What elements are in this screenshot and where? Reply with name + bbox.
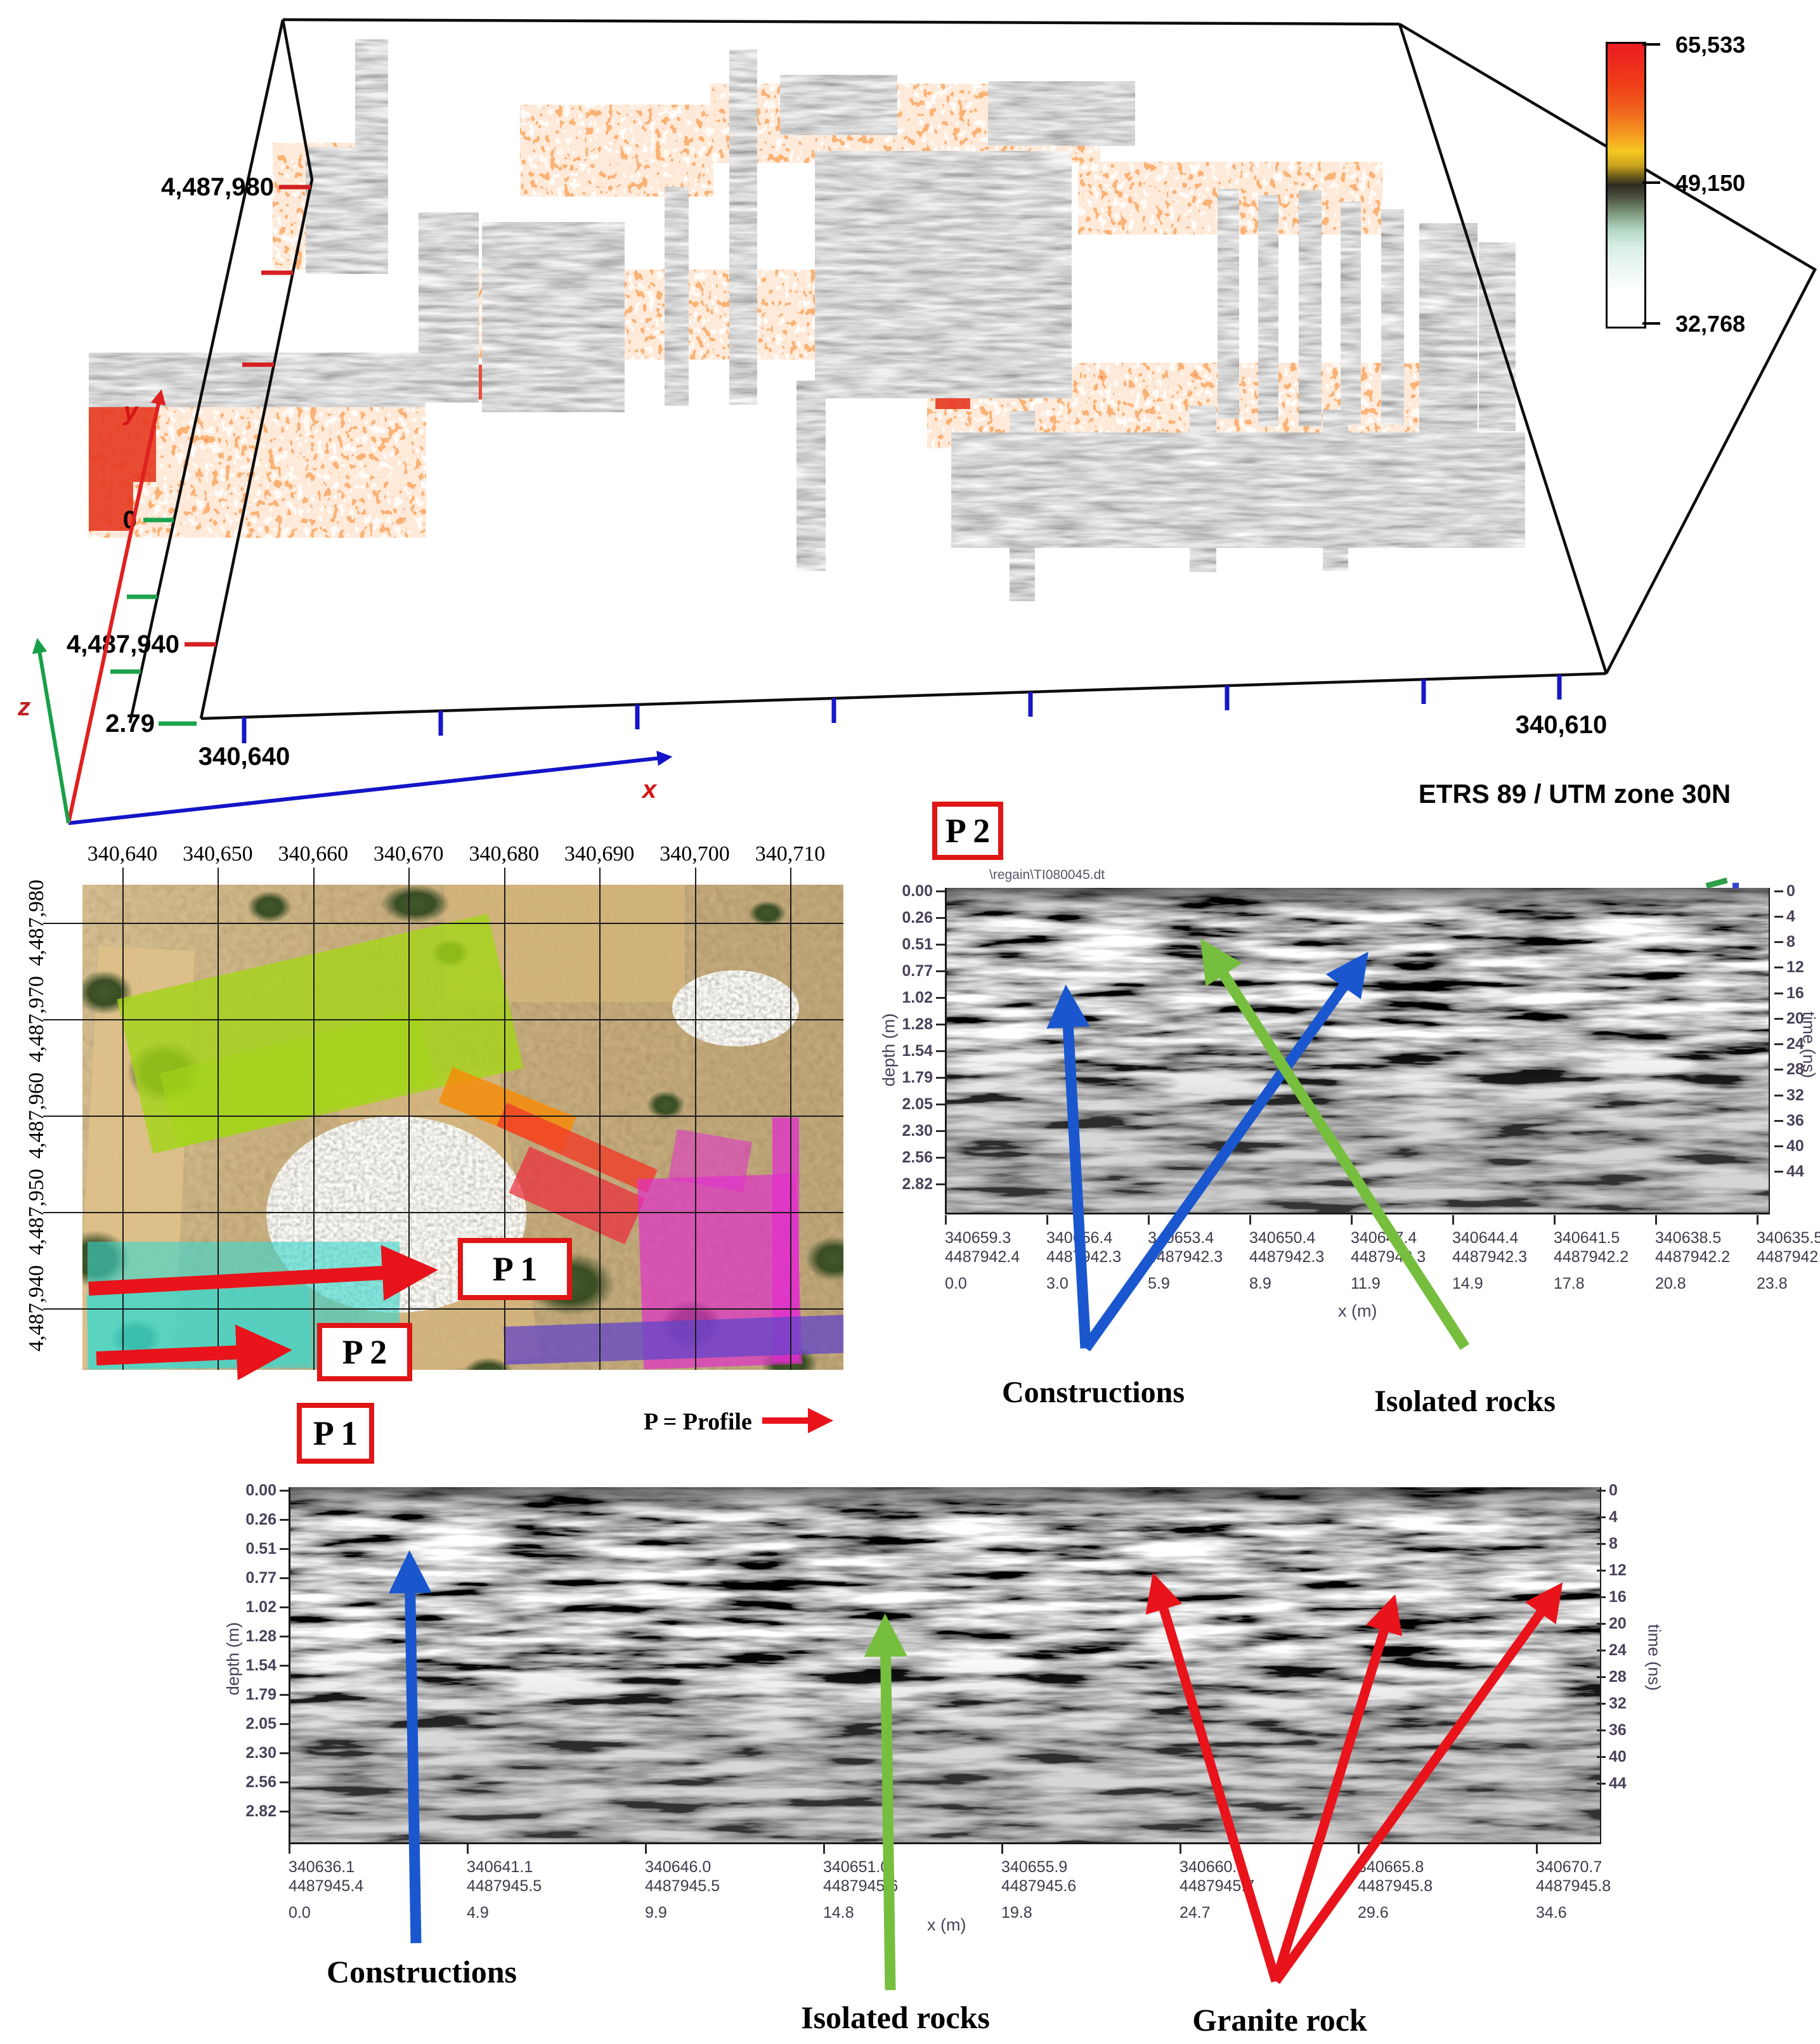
p2-depth-axis-label: depth (m): [880, 999, 899, 1101]
time-tick: 8: [1597, 1535, 1667, 1552]
profile-legend: P = Profile: [644, 1408, 752, 1436]
tick-dash: [1597, 1729, 1606, 1731]
tick-easting: 340659.3: [945, 1229, 1020, 1248]
3d-axis-y-label: y: [122, 398, 139, 426]
tick-mark: [1554, 1215, 1556, 1225]
tick-mark: [1452, 1215, 1454, 1225]
p1-radargram-shade: [290, 1487, 1600, 1842]
colorbar: [1606, 42, 1646, 329]
depth-tick: 0.51: [219, 1540, 289, 1557]
tick-dash: [1597, 1490, 1606, 1492]
depth-tick: 0.00: [875, 883, 945, 899]
tick-dash: [1597, 1516, 1606, 1518]
tick-dash: [1774, 993, 1783, 994]
map-gridline-h: [43, 1308, 843, 1310]
tick-easting: 340650.4: [1249, 1229, 1324, 1248]
vegetation: [247, 891, 292, 923]
tick-easting: 340635.5: [1757, 1229, 1820, 1248]
tick-northing: 4487942.3: [1452, 1248, 1527, 1267]
map-easting-labels: 340,640340,650340,660340,670340,680340,6…: [122, 842, 790, 868]
tick-dash: [1774, 1069, 1783, 1071]
tick-easting: 340647.4: [1351, 1229, 1426, 1248]
tick-easting: 340665.8: [1358, 1858, 1433, 1877]
tick-easting: 340646.0: [645, 1858, 720, 1877]
vegetation: [748, 901, 786, 926]
tick-dash: [1597, 1596, 1606, 1598]
depth-tick: 2.56: [219, 1774, 289, 1790]
time-tick: 0: [1774, 883, 1820, 899]
map-northing-labels: 4,487,9804,487,9704,487,9604,487,9504,48…: [19, 923, 55, 1308]
map-gridline-h: [43, 1019, 843, 1020]
tick-dash: [1774, 1043, 1783, 1045]
tick-distance: 20.8: [1655, 1275, 1730, 1294]
tick-easting: 340641.5: [1554, 1229, 1628, 1248]
overlay-cyan-grid: [86, 1287, 311, 1370]
colorbar-label-min: 32,768: [1675, 311, 1745, 337]
tick-dash: [1774, 1018, 1783, 1020]
tick-dash: [1597, 1676, 1606, 1678]
map-gridline-h: [43, 1212, 843, 1213]
tick-dash: [1597, 1623, 1606, 1625]
p2-constructions-label: Constructions: [1002, 1375, 1185, 1410]
time-tick: 36: [1774, 1112, 1820, 1129]
p1-radargram: [289, 1487, 1601, 1844]
tick-dash: [1774, 916, 1783, 918]
map-p1-arrow-box: P 1: [458, 1238, 572, 1300]
tick-distance: 29.6: [1358, 1904, 1433, 1923]
tick-dash: [1597, 1543, 1606, 1545]
tick-northing: 4487942.4: [945, 1248, 1020, 1267]
tick-distance: 0.0: [945, 1275, 1020, 1294]
tick-distance: 24.7: [1180, 1904, 1254, 1923]
tick-dash: [1774, 1120, 1783, 1122]
tick-dash: [1774, 1171, 1783, 1173]
depth-tick: 2.82: [219, 1803, 289, 1819]
tick-easting: 340655.9: [1001, 1858, 1076, 1877]
tick-easting: 340636.1: [289, 1858, 363, 1877]
tick-northing: 4487942.3: [1249, 1248, 1324, 1267]
time-tick: 12: [1774, 960, 1820, 976]
map-gridline-v: [695, 868, 696, 1370]
tick-northing: 4487945.5: [645, 1877, 720, 1896]
colorbar-label-max: 65,533: [1675, 32, 1745, 58]
tick-northing: 4487945.8: [1536, 1877, 1611, 1896]
tick-distance: 8.9: [1249, 1275, 1324, 1294]
tick-northing: 4487942.3: [1351, 1248, 1426, 1267]
depth-tick: 2.82: [875, 1176, 945, 1193]
time-tick: 4: [1774, 908, 1820, 925]
tick-northing: 4487942.2: [1655, 1248, 1730, 1267]
p2-title-box: P 2: [932, 802, 1003, 860]
depth-tick: 0.26: [875, 909, 945, 926]
tick-mark: [1536, 1844, 1538, 1854]
tick-easting: 340653.4: [1148, 1229, 1223, 1248]
tick-mark: [1180, 1844, 1181, 1854]
tick-easting: 340656.4: [1046, 1229, 1121, 1248]
tick-northing: 4487945.6: [823, 1877, 898, 1896]
tick-distance: 14.8: [823, 1904, 898, 1923]
tick-dash: [1597, 1703, 1606, 1705]
p2-title-label: P 2: [946, 811, 991, 850]
3d-tick-y-min: 4,487,940: [67, 630, 179, 658]
tick-dash: [280, 1519, 289, 1521]
tick-distance: 19.8: [1001, 1904, 1076, 1923]
tick-northing: 4487945.7: [1180, 1877, 1254, 1896]
tick-mark: [467, 1844, 469, 1854]
map-gridline-h: [43, 923, 843, 924]
time-tick: 12: [1597, 1562, 1667, 1579]
tick-mark: [1046, 1215, 1048, 1225]
colorbar-tick-top: [1642, 43, 1660, 46]
tick-dash: [1597, 1783, 1606, 1785]
tick-distance: 17.8: [1554, 1275, 1628, 1294]
3d-z-ticks: [110, 520, 197, 724]
time-tick: 0: [1597, 1482, 1667, 1499]
tick-easting: 340651.0: [823, 1858, 898, 1877]
tick-dash: [1597, 1570, 1606, 1572]
tick-mark: [1148, 1215, 1150, 1225]
tick-mark: [945, 1215, 947, 1225]
tick-northing: 4487945.6: [1001, 1877, 1076, 1896]
tick-dash: [280, 1636, 289, 1637]
3d-tick-x-right: 340,610: [1516, 711, 1608, 739]
3d-tick-z-max: 2.79: [105, 710, 155, 738]
tick-mark: [823, 1844, 825, 1854]
tick-mark: [1655, 1215, 1657, 1225]
3d-tick-x-left: 340,640: [198, 743, 290, 771]
tick-mark: [1249, 1215, 1251, 1225]
tick-easting: 340638.5: [1655, 1229, 1730, 1248]
tick-dash: [1774, 967, 1783, 968]
map-gridline-v: [218, 868, 219, 1370]
tick-distance: 4.9: [467, 1904, 542, 1923]
tick-easting: 340641.1: [467, 1858, 542, 1877]
tick-dash: [280, 1548, 289, 1550]
tick-dash: [936, 1183, 945, 1185]
tick-mark: [645, 1844, 647, 1854]
tick-distance: 23.8: [1757, 1275, 1820, 1294]
tick-northing: 4487942.3: [1046, 1248, 1121, 1267]
time-tick: 44: [1774, 1164, 1820, 1180]
3d-fence-diagram: 4,487,980 0 4,487,940 2.79 340,640 340,6…: [0, 0, 1820, 837]
3d-axis-z-label: z: [17, 693, 30, 721]
tick-dash: [280, 1606, 289, 1608]
tick-northing: 4487942.2: [1554, 1248, 1628, 1267]
tick-distance: 9.9: [645, 1904, 720, 1923]
map-gridline-v: [122, 868, 124, 1370]
p1-constructions-label: Constructions: [327, 1953, 517, 1990]
time-tick: 40: [1597, 1748, 1667, 1765]
p2-time-ticks: 048121620242832364044: [944, 883, 1820, 1180]
tick-northing: 4487945.8: [1358, 1877, 1433, 1896]
depth-tick: 0.00: [219, 1482, 289, 1499]
tick-dash: [1774, 1095, 1783, 1097]
p2-x-axis-label: x (m): [1338, 1301, 1377, 1321]
tick-dash: [1774, 941, 1783, 943]
map-gridline-v: [313, 868, 315, 1370]
tick-dash: [280, 1694, 289, 1696]
map-gridline-v: [790, 868, 791, 1370]
rock-cluster: [672, 970, 799, 1046]
p1-granite-rock-label: Granite rock: [1192, 2002, 1367, 2038]
map-p2-arrow-label: P 2: [342, 1332, 387, 1372]
time-tick: 44: [1597, 1775, 1667, 1792]
tick-mark: [289, 1844, 290, 1854]
tick-dash: [1774, 890, 1783, 892]
tick-dash: [280, 1577, 289, 1579]
tick-northing: 4487945.5: [467, 1877, 542, 1896]
figure-page: { "panel3d": { "tick_y_max": "4,487,980"…: [0, 0, 1820, 2044]
tick-distance: 34.6: [1536, 1904, 1611, 1923]
tick-dash: [280, 1490, 289, 1492]
tick-northing: 4487942.2: [1757, 1248, 1820, 1267]
depth-tick: 0.77: [219, 1570, 289, 1586]
map-p2-arrow-box: P 2: [317, 1323, 412, 1381]
tick-dash: [1597, 1756, 1606, 1758]
tick-mark: [1001, 1844, 1003, 1854]
tick-northing: 4487942.3: [1148, 1248, 1223, 1267]
tick-distance: 0.0: [289, 1904, 363, 1923]
tick-dash: [280, 1811, 289, 1813]
tick-dash: [280, 1752, 289, 1754]
p1-depth-axis-label: depth (m): [224, 1608, 244, 1710]
time-tick: 4: [1597, 1509, 1667, 1525]
depth-tick: 0.51: [875, 936, 945, 953]
depth-tick: 2.56: [875, 1150, 945, 1166]
depth-tick: 2.30: [875, 1123, 945, 1140]
map-p1-arrow-label: P 1: [493, 1249, 538, 1289]
3d-crs-label: ETRS 89 / UTM zone 30N: [1419, 779, 1731, 809]
colorbar-tick-bottom: [1642, 322, 1660, 325]
p1-caption-label: P 1: [313, 1414, 358, 1453]
tick-easting: 340644.4: [1452, 1229, 1527, 1248]
tick-dash: [280, 1723, 289, 1725]
depth-tick: 2.30: [219, 1745, 289, 1761]
time-tick: 40: [1774, 1138, 1820, 1155]
tick-mark: [1358, 1844, 1360, 1854]
tick-dash: [1774, 1145, 1783, 1147]
time-tick: 8: [1774, 934, 1820, 951]
tick-dash: [1597, 1650, 1606, 1651]
depth-tick: 0.26: [219, 1511, 289, 1528]
p1-caption-box: P 1: [297, 1403, 374, 1464]
map-gridline-v: [408, 868, 410, 1370]
tick-easting: 340670.7: [1536, 1858, 1611, 1877]
tick-dash: [280, 1665, 289, 1667]
tick-distance: 5.9: [1148, 1275, 1223, 1294]
tick-distance: 3.0: [1046, 1275, 1121, 1294]
tick-mark: [1351, 1215, 1353, 1225]
tick-mark: [1757, 1215, 1758, 1225]
tick-dash: [280, 1781, 289, 1783]
map-gridline-h: [43, 1116, 843, 1117]
colorbar-tick-mid: [1642, 181, 1660, 184]
depth-tick: 0.77: [875, 963, 945, 979]
tick-easting: 340660.8: [1180, 1858, 1254, 1877]
3d-tick-y-max: 4,487,980: [161, 173, 274, 201]
p1-x-axis-label: x (m): [927, 1915, 966, 1935]
colorbar-label-mid: 49,150: [1675, 170, 1745, 197]
p2-file-label: \regain\TI080045.dt: [989, 868, 1105, 883]
vegetation: [380, 885, 450, 923]
p2-time-axis-label: time (ns): [1799, 994, 1819, 1096]
map-gridline-v: [599, 868, 601, 1370]
p1-time-axis-label: time (ns): [1644, 1607, 1664, 1709]
3d-axis-x-label: x: [641, 776, 658, 804]
3d-x-ticks: [244, 675, 1559, 743]
p1-isolated-rocks-label: Isolated rocks: [801, 1999, 990, 2036]
time-tick: 36: [1597, 1722, 1667, 1738]
tick-distance: 11.9: [1351, 1275, 1426, 1294]
tick-distance: 14.9: [1452, 1275, 1527, 1294]
p2-isolated-rocks-label: Isolated rocks: [1374, 1384, 1556, 1419]
tick-northing: 4487945.4: [289, 1877, 363, 1896]
depth-tick: 2.05: [219, 1715, 289, 1732]
time-tick: 16: [1597, 1589, 1667, 1605]
